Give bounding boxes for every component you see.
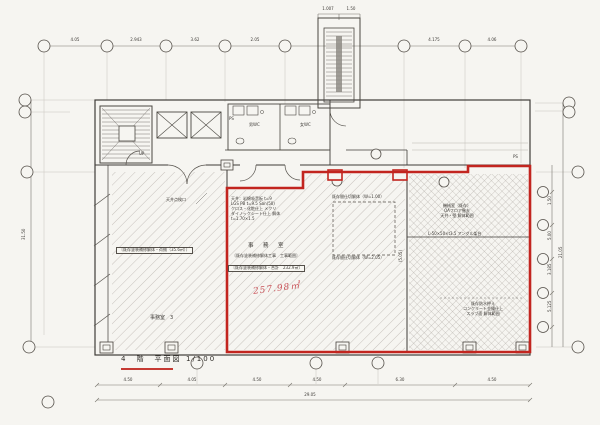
dim-top-1: 4.05 [71,38,80,43]
floor-plan-drawing [0,0,600,425]
wc-women-label: 女WC [300,123,311,128]
machine-room-south-line: スラブ面 解体範囲 [452,311,514,316]
ceiling-access-note: 天井点検口 [166,198,186,203]
stair-up-label: UP [139,152,144,157]
dim-tower-1: 1.007 [322,7,333,12]
dim-inner-width: (5.05) [399,250,404,262]
left-room-scope-box: 〔既存塗装補修解体・荷揃（35.6㎡）〕 [116,247,193,254]
dim-left-total: 31.50 [22,229,27,240]
dim-top-5: 4.175 [428,38,439,43]
dim-right-4: 5.125 [548,301,553,312]
dim-right-1: 1.50 [548,196,553,205]
dim-bottom-total: 29.05 [304,393,315,398]
pipe-shaft-label: PS [229,117,234,122]
dim-right-3: 3.185 [548,264,553,275]
dim-top-3: 3.62 [191,38,200,43]
dim-right-total: 21.05 [559,247,564,258]
office-spec-line: t=1.70×1.5 [231,216,280,221]
dim-bottom-2: 4.05 [188,378,197,383]
partition-upper-note: 既存間仕切解体（W=1.00） [332,195,384,200]
machine-room-line: 天井・壁 解体範囲 [428,213,486,218]
floor-plan-sheet: 4.05 2.943 3.62 2.05 4.175 4.06 1.007 1.… [0,0,600,425]
dim-bottom-1: 4.50 [124,378,133,383]
office-scope-note: 〔既存塗装補修解体工事 工事範囲〕 [232,254,300,259]
dim-bottom-3: 4.50 [253,378,262,383]
office-total-box: 〔既存塗装補修解体・合計 232.9㎡〕 [228,265,305,272]
dim-bottom-5: 6.30 [396,378,405,383]
dim-bottom-4: 4.50 [313,378,322,383]
wc-men-label: 男WC [249,123,260,128]
office-room-name: 事 務 室 [248,243,286,250]
dim-right-2: 5.00 [548,231,553,240]
office-spec-notes: 天井：岩綿吸音板 t=9 LGS PB t=9.5 San(50) クロス・化粧… [231,196,280,221]
sheet-scale: 1/100 [186,355,216,363]
dim-top-4: 2.05 [251,38,260,43]
sheet-title: 4 階 平面図 [121,355,181,363]
angle-frame-note: L-50×50×t3.5 アングル架台 [428,232,482,237]
dim-bottom-6: 4.50 [488,378,497,383]
machine-room-labels: 機械室（既存） OAフロア撤去 天井・壁 解体範囲 [428,203,486,218]
dim-top-6: 4.06 [488,38,497,43]
pipe-shaft-right-label: PS [513,155,518,160]
left-room-name: 事務室 3 [150,315,173,321]
dim-tower-2: 1.50 [347,7,356,12]
dim-top-2: 2.943 [130,38,141,43]
partition-lower-note: 既存間仕切解体（W=2.05） [332,256,384,261]
title-red-underline [121,368,173,370]
machine-room-south-labels: 既存防水押え コンクリート金鏝仕上 スラブ面 解体範囲 [452,301,514,316]
